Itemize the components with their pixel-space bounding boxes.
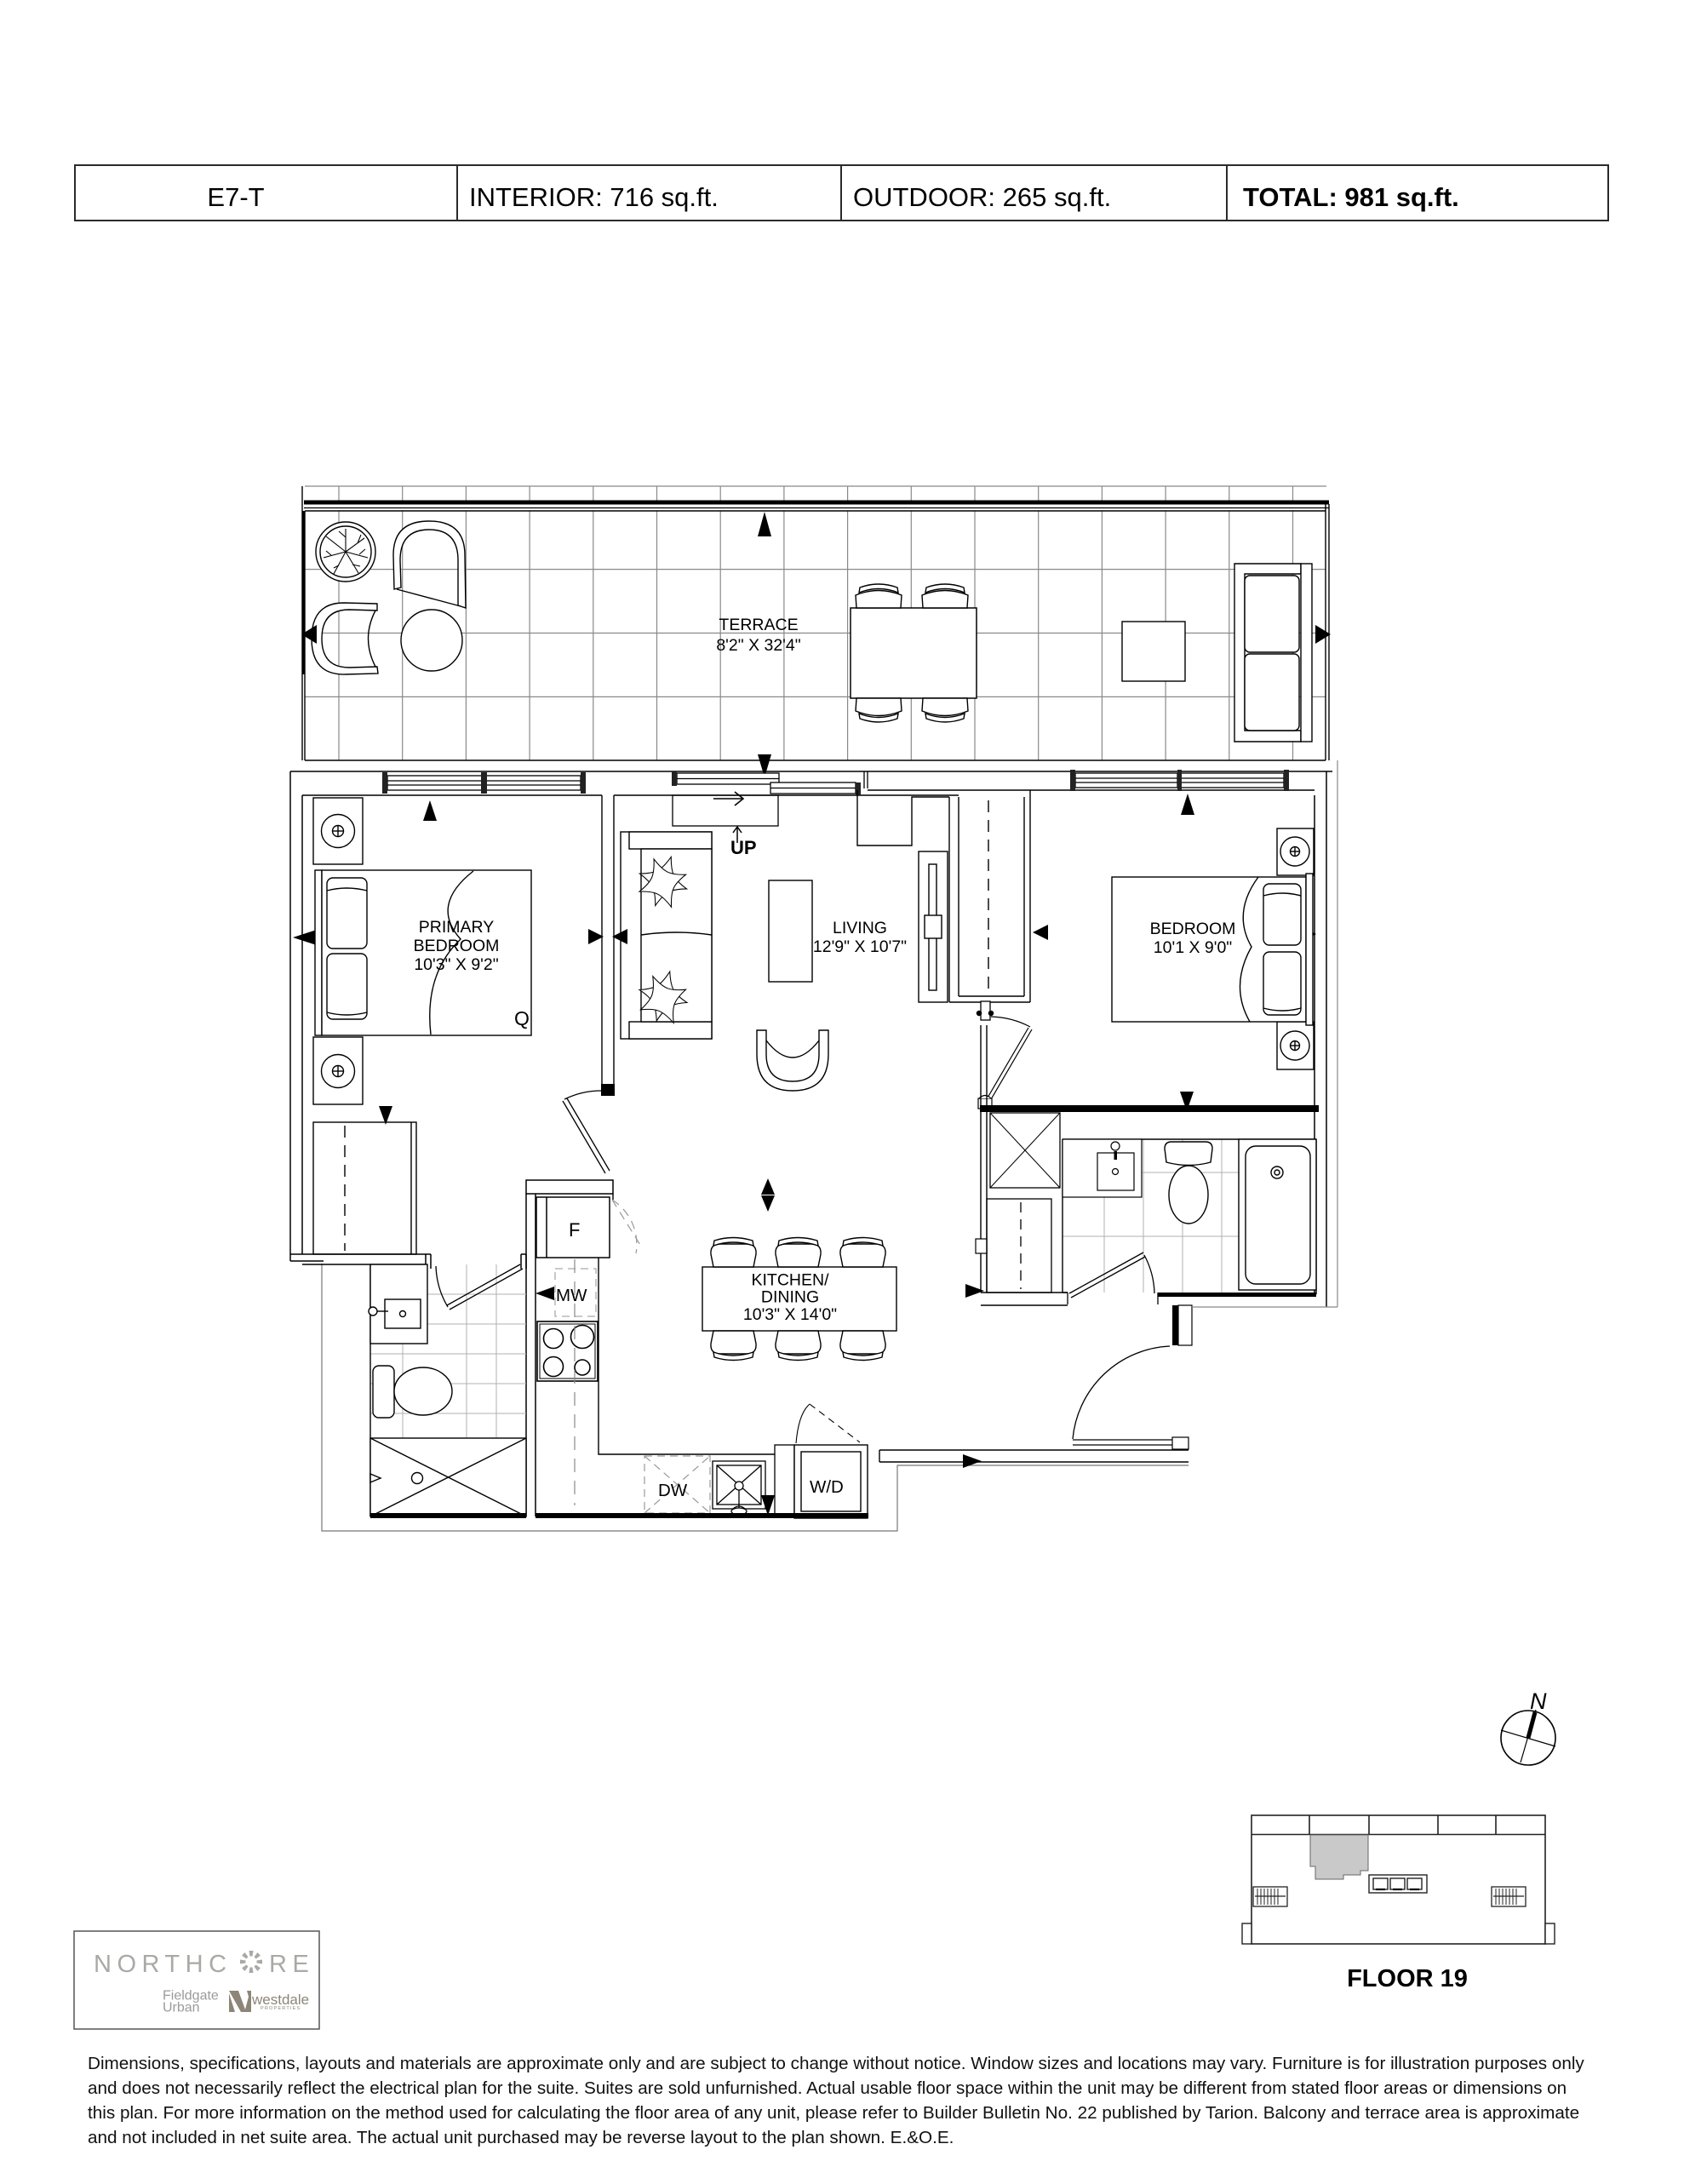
svg-text:10'3" X 14'0": 10'3" X 14'0" (743, 1305, 837, 1324)
svg-text:FLOOR 19: FLOOR 19 (1347, 1965, 1468, 1992)
svg-text:PRIMARY: PRIMARY (419, 918, 495, 937)
svg-text:Urban: Urban (163, 2001, 200, 2015)
svg-text:Dimensions, specifications, la: Dimensions, specifications, layouts and … (88, 2054, 1584, 2073)
svg-text:10'3" X 9'2": 10'3" X 9'2" (414, 955, 498, 974)
svg-text:OUTDOOR: 265 sq.ft.: OUTDOOR: 265 sq.ft. (853, 182, 1111, 212)
svg-text:TERRACE: TERRACE (719, 616, 798, 634)
svg-text:this plan. For more informatio: this plan. For more information on the m… (88, 2103, 1579, 2123)
svg-text:DINING: DINING (761, 1288, 819, 1307)
svg-text:PROPERTIES: PROPERTIES (261, 2006, 301, 2011)
svg-text:DW: DW (658, 1481, 688, 1500)
svg-text:Q: Q (514, 1007, 530, 1029)
svg-text:10'1 X 9'0": 10'1 X 9'0" (1154, 938, 1233, 957)
svg-text:INTERIOR: 716 sq.ft.: INTERIOR: 716 sq.ft. (469, 182, 719, 212)
svg-text:and does not necessarily refle: and does not necessarily reflect the ele… (88, 2078, 1567, 2098)
svg-text:and not included in net suite: and not included in net suite area. The … (88, 2128, 954, 2147)
svg-text:UP: UP (730, 837, 757, 858)
svg-text:KITCHEN/: KITCHEN/ (751, 1271, 829, 1290)
svg-text:TOTAL: 981 sq.ft.: TOTAL: 981 sq.ft. (1243, 182, 1459, 212)
svg-text:F: F (569, 1219, 580, 1241)
svg-text:N: N (1530, 1688, 1547, 1714)
svg-text:MW: MW (556, 1286, 587, 1305)
svg-text:RE: RE (269, 1951, 314, 1978)
svg-text:BEDROOM: BEDROOM (414, 937, 500, 955)
svg-text:LIVING: LIVING (833, 919, 887, 937)
svg-text:8'2" X 32'4": 8'2" X 32'4" (716, 636, 800, 655)
svg-text:NORTHC: NORTHC (94, 1951, 232, 1978)
svg-text:E7-T: E7-T (207, 182, 264, 212)
svg-text:BEDROOM: BEDROOM (1150, 920, 1236, 938)
svg-text:W/D: W/D (810, 1477, 844, 1497)
svg-text:12'9" X 10'7": 12'9" X 10'7" (813, 937, 907, 956)
